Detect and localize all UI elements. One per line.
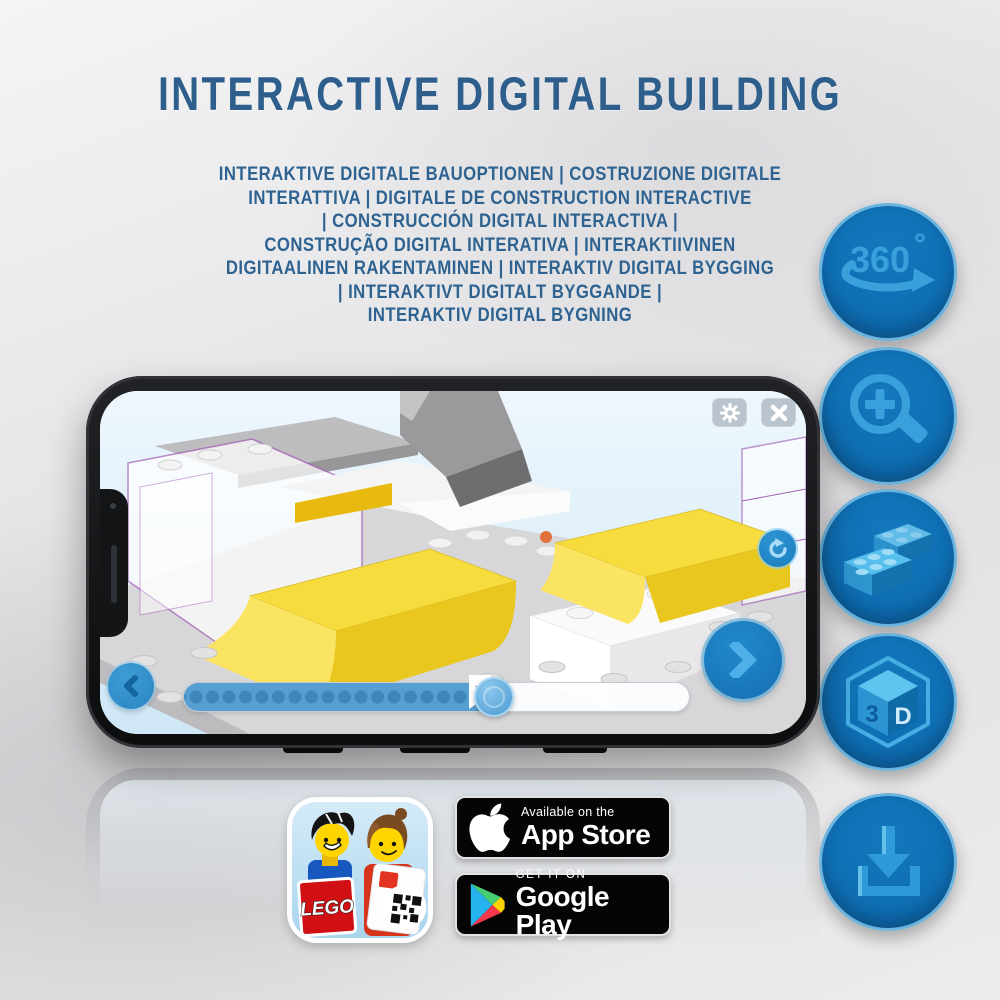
google-play-tagline: GET IT ON [516,870,659,882]
close-button[interactable] [761,398,796,427]
close-icon [770,404,788,422]
cube-d-label: D [894,703,911,730]
360-label: 360 [850,239,910,280]
page-title: INTERACTIVE DIGITAL BUILDING [158,66,842,121]
lego-logo-text: LEGO [300,896,355,921]
apple-icon [469,803,511,853]
subtitle-line: INTERATTIVA | DIGITALE DE CONSTRUCTION I… [157,187,843,211]
phone-reflection [86,768,820,993]
previous-step-button[interactable] [108,663,154,709]
build-progress-slider[interactable]: ★ [183,682,690,712]
brick-icon [836,506,940,610]
app-store-label: App Store [521,821,650,849]
google-play-label: Google Play [516,883,659,939]
rotate-piece-button[interactable] [759,530,796,567]
lego-app-art: LEGO [292,802,428,938]
chevron-left-icon [121,675,141,697]
360-rotation-icon: 360 ° [836,220,940,324]
gear-icon [720,403,740,423]
3d-cube-icon: 3 D [838,652,938,752]
subtitle-line: INTERAKTIVE DIGITALE BAUOPTIONEN | COSTR… [157,163,843,187]
degree-sup: ° [914,228,926,261]
feature-download-badge [819,793,957,931]
phone-screen: ★ [100,391,806,734]
phone-mockup: ★ [86,376,820,748]
subtitle-line: INTERAKTIV DIGITAL BYGNING [157,304,843,328]
google-play-badge[interactable]: GET IT ON Google Play [455,873,671,936]
speaker-slit [111,545,117,603]
phone-reflection-screen [100,780,806,930]
feature-zoom-badge [819,347,957,485]
feature-360-rotation-badge: 360 ° [819,203,957,341]
build-progress-fill [184,683,493,711]
phone-notch [100,489,128,637]
chevron-right-icon [727,642,759,678]
zoom-in-icon [838,366,938,466]
subtitle-line: | INTERAKTIVT DIGITALT BYGGANDE | [157,281,843,305]
settings-button[interactable] [712,398,747,427]
multilingual-subtitle: INTERAKTIVE DIGITALE BAUOPTIONEN | COSTR… [157,163,843,328]
google-play-icon [469,882,506,928]
feature-3d-badge: 3 D [819,633,957,771]
page-title-wrap: INTERACTIVE DIGITAL BUILDING [0,66,1000,121]
cube-3-label: 3 [865,701,878,728]
rotate-icon [766,537,790,561]
subtitle-line: | CONSTRUCCIÓN DIGITAL INTERACTIVA | [157,210,843,234]
app-store-badge[interactable]: Available on the App Store [455,796,671,859]
next-step-button[interactable] [704,621,782,699]
progress-drag-handle[interactable] [474,677,514,717]
subtitle-line: CONSTRUÇÃO DIGITAL INTERATIVA | INTERAKT… [157,234,843,258]
download-icon [838,812,938,912]
subtitle-line: DIGITAALINEN RAKENTAMINEN | INTERAKTIV D… [157,257,843,281]
app-store-tagline: Available on the [521,806,650,819]
lego-app-icon[interactable]: LEGO [287,797,433,943]
front-camera [110,503,116,509]
feature-brick-badge [819,489,957,627]
